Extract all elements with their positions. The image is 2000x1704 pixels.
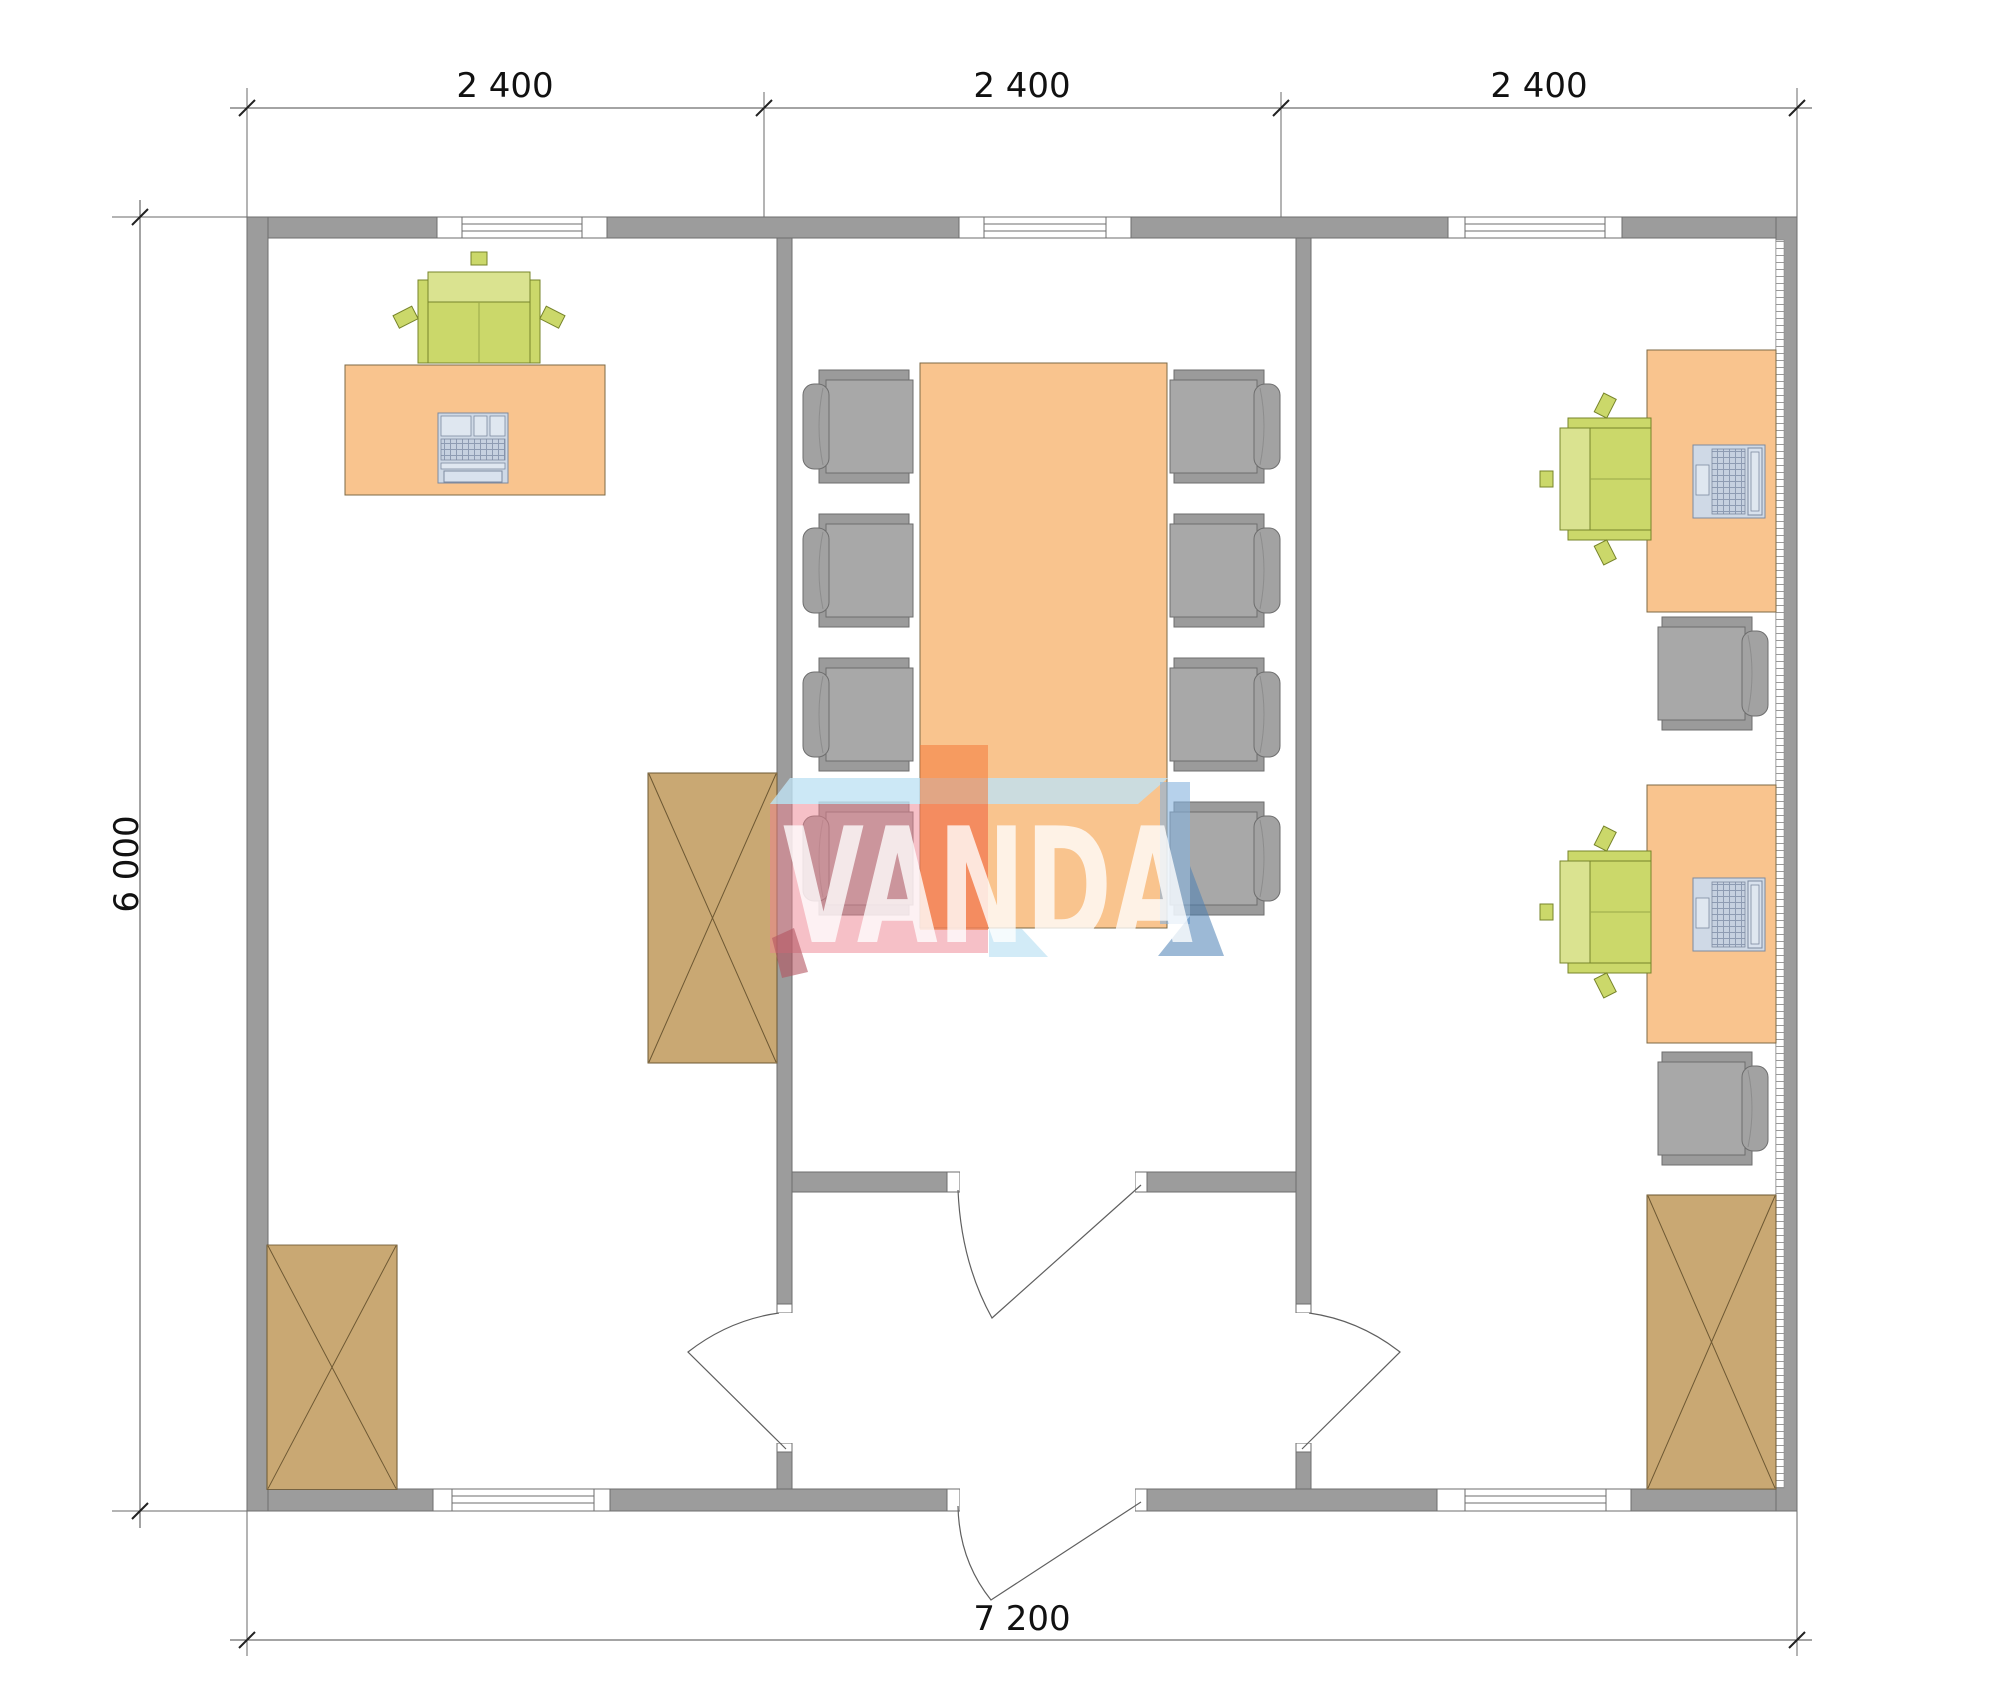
office-chair-green	[393, 252, 565, 363]
logo-wordmark: VANDA	[783, 793, 1193, 980]
meeting-room-bottom-wall-left	[792, 1172, 947, 1192]
conference-chair	[1170, 514, 1280, 627]
door-swing-entrance	[958, 1502, 1141, 1600]
window-top-room2	[959, 217, 1131, 238]
conference-chair	[803, 370, 913, 483]
door-jamb	[947, 1172, 960, 1192]
laptop	[1693, 445, 1765, 518]
office-chair-green	[1540, 826, 1651, 998]
room3-door-opening	[1295, 1313, 1312, 1443]
conference-chair	[1170, 370, 1280, 483]
entrance-opening	[960, 1488, 1135, 1512]
meeting-room-bottom-wall-right	[1147, 1172, 1296, 1192]
vestibule-inner-opening	[960, 1171, 1135, 1193]
desktop-computer	[438, 413, 508, 483]
wall-right-panel-ticks	[1776, 240, 1784, 1488]
window-bottom-room3	[1437, 1489, 1631, 1511]
door-jamb	[777, 1304, 792, 1313]
guest-chair-gray	[1658, 1052, 1768, 1165]
vestibule-wall-left-stub	[777, 1452, 792, 1489]
partition-room1-room2	[777, 238, 792, 1311]
dim-label-bay1: 2 400	[456, 66, 553, 106]
vestibule-wall-right-stub	[1296, 1452, 1311, 1489]
dim-label-depth: 6 000	[107, 815, 147, 912]
dim-label-width: 7 200	[973, 1599, 1070, 1639]
conference-chair	[803, 658, 913, 771]
door-swing-room1	[688, 1313, 786, 1449]
door-jamb	[1135, 1489, 1147, 1511]
floor-plan-page: VANDA 2 400 2 400 2 400 6 000 7 200	[0, 0, 2000, 1704]
partition-room2-room3	[1296, 238, 1311, 1311]
floor-plan-drawing: VANDA 2 400 2 400 2 400 6 000 7 200	[0, 0, 2000, 1704]
door-swing-vestibule-inner	[958, 1185, 1141, 1318]
office-chair-green	[1540, 393, 1651, 565]
conference-chair	[1170, 658, 1280, 771]
cabinet-room3-corner	[1647, 1195, 1776, 1489]
vanda-watermark: VANDA	[770, 745, 1224, 980]
cabinet-room1-middle	[648, 773, 777, 1063]
window-top-room3	[1448, 217, 1622, 238]
guest-chair-gray	[1658, 617, 1768, 730]
door-swing-room3	[1302, 1313, 1400, 1449]
window-bottom-room1	[433, 1489, 610, 1511]
wall-left	[247, 217, 268, 1511]
dim-label-bay3: 2 400	[1490, 66, 1587, 106]
dim-label-bay2: 2 400	[973, 66, 1070, 106]
laptop	[1693, 878, 1765, 951]
cabinet-room1-corner	[267, 1245, 397, 1489]
door-jamb	[1296, 1304, 1311, 1313]
doors	[688, 1185, 1400, 1600]
room1-door-opening	[776, 1313, 793, 1443]
window-top-room1	[437, 217, 607, 238]
conference-chair	[803, 514, 913, 627]
